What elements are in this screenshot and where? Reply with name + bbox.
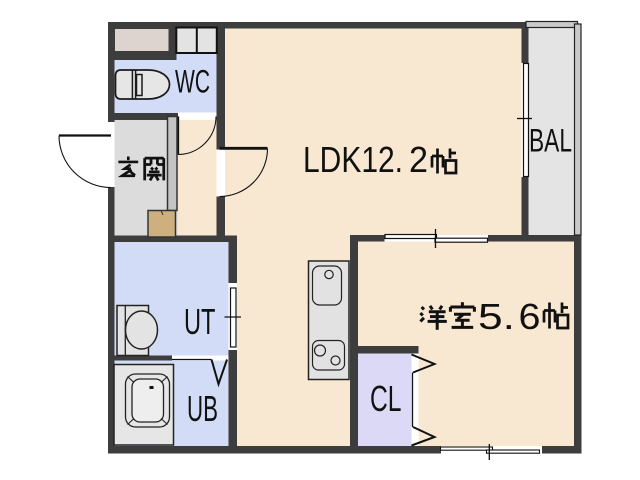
svg-text:UB: UB	[187, 388, 218, 429]
svg-text:LDK12.: LDK12.	[303, 139, 403, 180]
svg-text:CL: CL	[370, 378, 402, 419]
svg-text:BAL: BAL	[529, 123, 572, 159]
svg-text:UT: UT	[184, 301, 216, 342]
svg-text:WC: WC	[175, 64, 210, 100]
svg-text:6: 6	[519, 296, 541, 337]
svg-text:2: 2	[409, 139, 428, 180]
svg-text:5.: 5.	[478, 296, 515, 337]
